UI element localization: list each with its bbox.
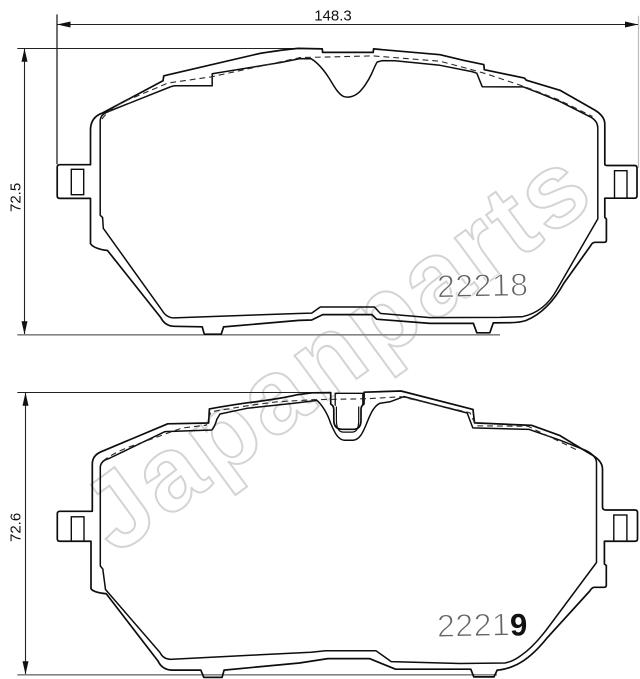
svg-text:9: 9 xyxy=(510,607,528,642)
svg-text:72.6: 72.6 xyxy=(8,513,25,542)
svg-text:72.5: 72.5 xyxy=(8,183,25,212)
svg-text:2221: 2221 xyxy=(437,606,511,644)
svg-text:148.3: 148.3 xyxy=(314,7,352,24)
svg-text:22218: 22218 xyxy=(437,267,529,305)
